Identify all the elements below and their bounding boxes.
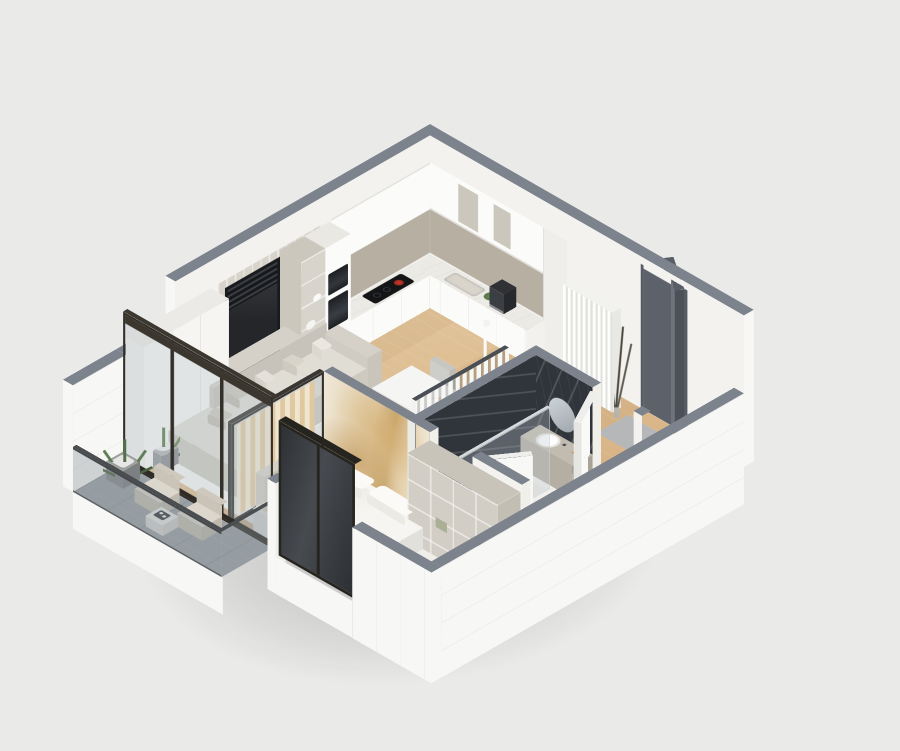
- burner: [371, 292, 382, 298]
- floor-plan-render-stage: [0, 0, 900, 751]
- branches: [614, 326, 617, 418]
- floor-vase: [611, 407, 620, 418]
- lamp-head: [479, 320, 491, 327]
- end-cap: [63, 380, 73, 492]
- end-cap: [744, 310, 754, 467]
- window-mullion: [317, 446, 320, 576]
- door-jamb: [685, 289, 688, 435]
- white-vase: [313, 292, 321, 303]
- corner-cap: [431, 567, 441, 683]
- door-jamb: [641, 264, 644, 410]
- frame-post: [220, 370, 224, 519]
- balcony-railing-east: [219, 546, 272, 576]
- basin-faucet: [562, 443, 568, 446]
- frame-post: [170, 341, 174, 490]
- decor-branches: [614, 416, 617, 418]
- folded-clothes: [436, 517, 447, 533]
- exterior-face: [267, 479, 275, 594]
- apartment-3d-scene: [73, 287, 734, 666]
- oven-door: [328, 290, 348, 331]
- door-edge: [675, 289, 685, 436]
- front-wall-stub: [267, 583, 285, 594]
- bedroom-window: [279, 551, 362, 599]
- burner: [381, 286, 392, 292]
- hot-burner: [392, 279, 406, 287]
